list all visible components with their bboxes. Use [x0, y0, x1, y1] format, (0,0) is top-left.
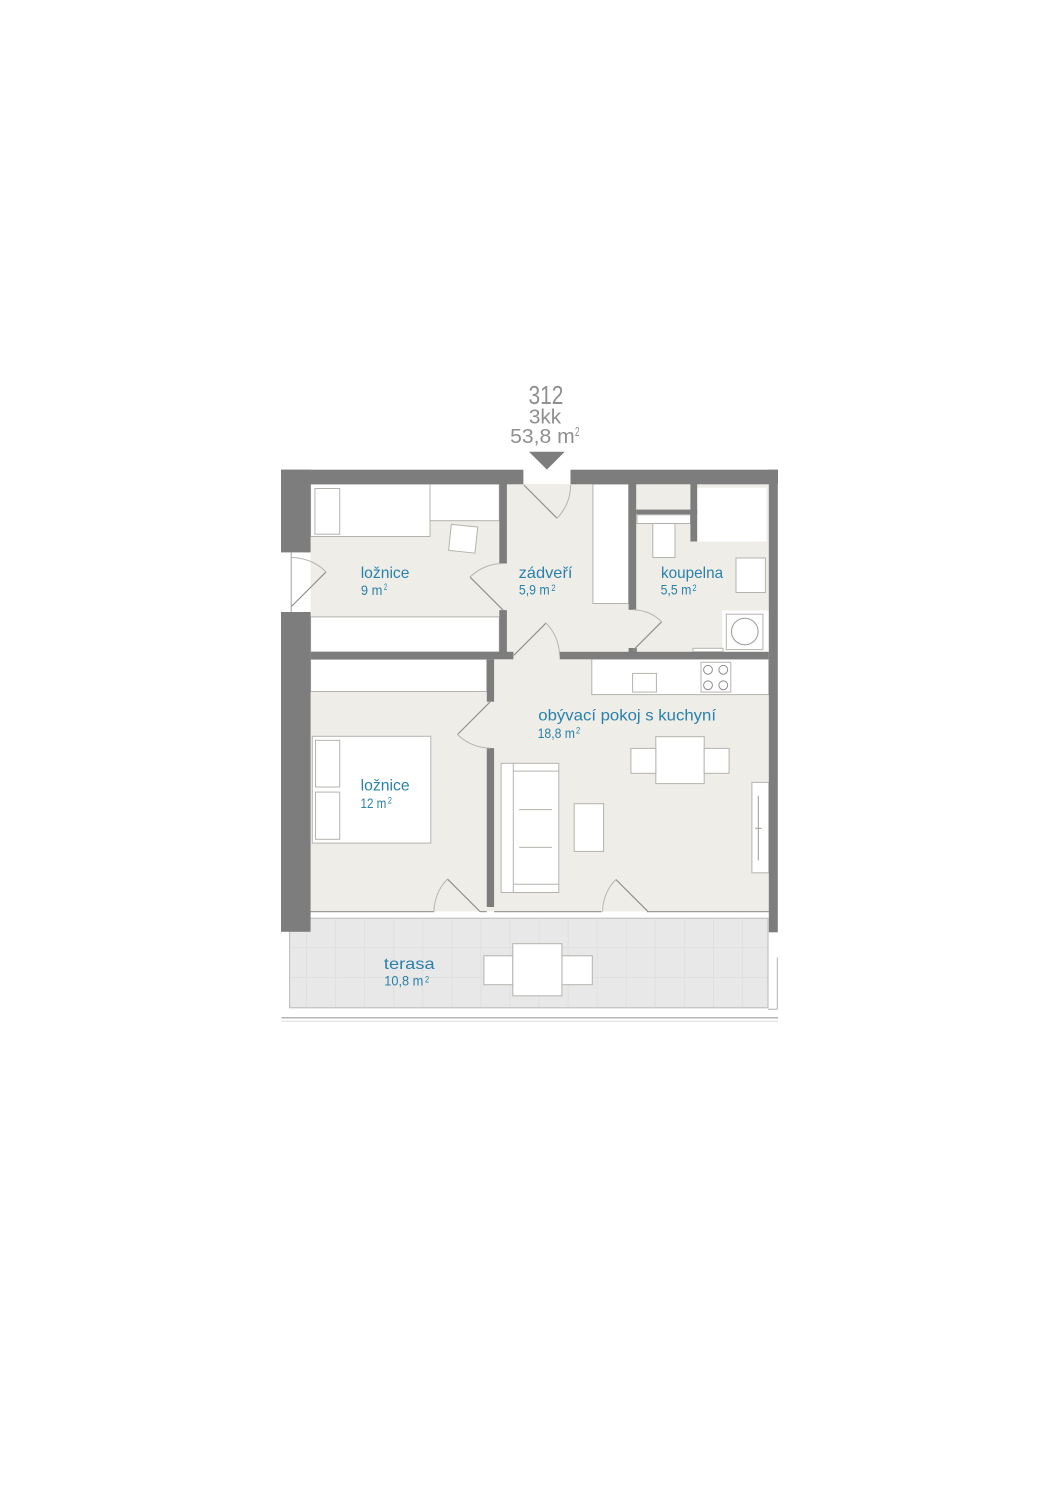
svg-text:zádveří: zádveří: [519, 565, 573, 582]
svg-text:5,9 m: 5,9 m: [519, 582, 550, 597]
svg-text:2: 2: [384, 582, 387, 592]
svg-text:2: 2: [551, 583, 555, 593]
svg-text:53,8 m: 53,8 m: [510, 426, 575, 448]
svg-text:2: 2: [692, 583, 696, 593]
svg-text:5,5 m: 5,5 m: [661, 582, 692, 597]
svg-text:18,8 m: 18,8 m: [538, 726, 575, 741]
svg-text:terasa: terasa: [384, 956, 435, 973]
svg-text:2: 2: [575, 424, 580, 439]
svg-text:12 m: 12 m: [361, 796, 387, 811]
svg-text:ložnice: ložnice: [361, 778, 410, 795]
svg-text:2: 2: [425, 974, 429, 984]
svg-text:2: 2: [388, 796, 392, 806]
svg-text:koupelna: koupelna: [661, 565, 723, 582]
svg-text:ložnice: ložnice: [361, 565, 410, 582]
svg-text:10,8 m: 10,8 m: [384, 974, 423, 989]
svg-text:2: 2: [576, 725, 580, 735]
svg-text:9 m: 9 m: [361, 583, 383, 598]
svg-text:obývací pokoj s kuchyní: obývací pokoj s kuchyní: [538, 708, 716, 725]
